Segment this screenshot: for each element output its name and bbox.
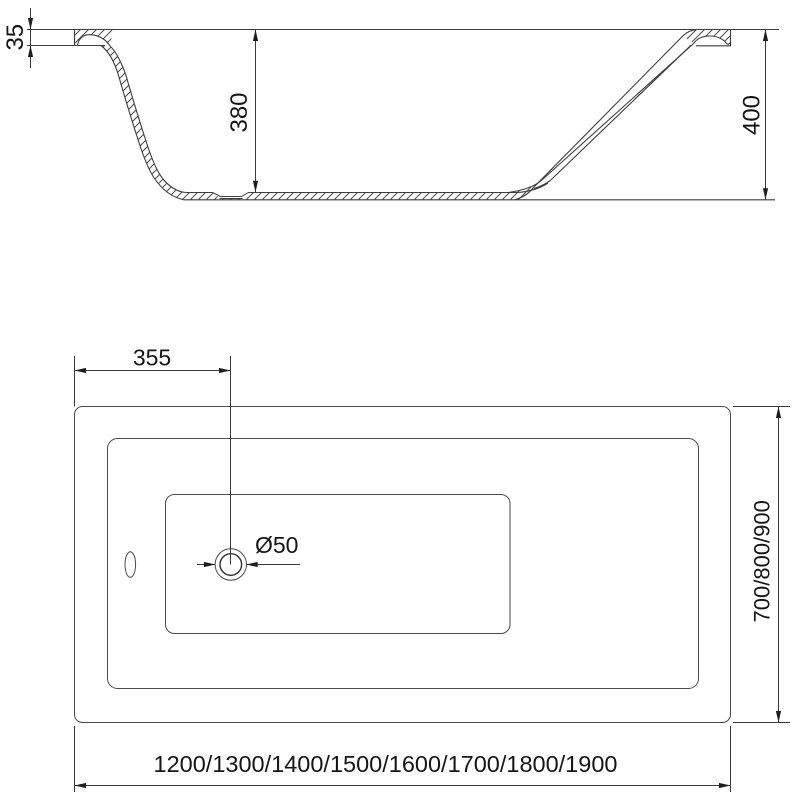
svg-text:Ø50: Ø50: [255, 532, 298, 558]
svg-text:355: 355: [133, 345, 171, 371]
svg-text:35: 35: [2, 24, 29, 51]
svg-text:700/800/900: 700/800/900: [750, 500, 775, 622]
svg-text:380: 380: [226, 92, 253, 132]
svg-text:400: 400: [739, 95, 766, 135]
svg-text:1200/1300/1400/1500/1600/1700/: 1200/1300/1400/1500/1600/1700/1800/1900: [154, 751, 618, 777]
